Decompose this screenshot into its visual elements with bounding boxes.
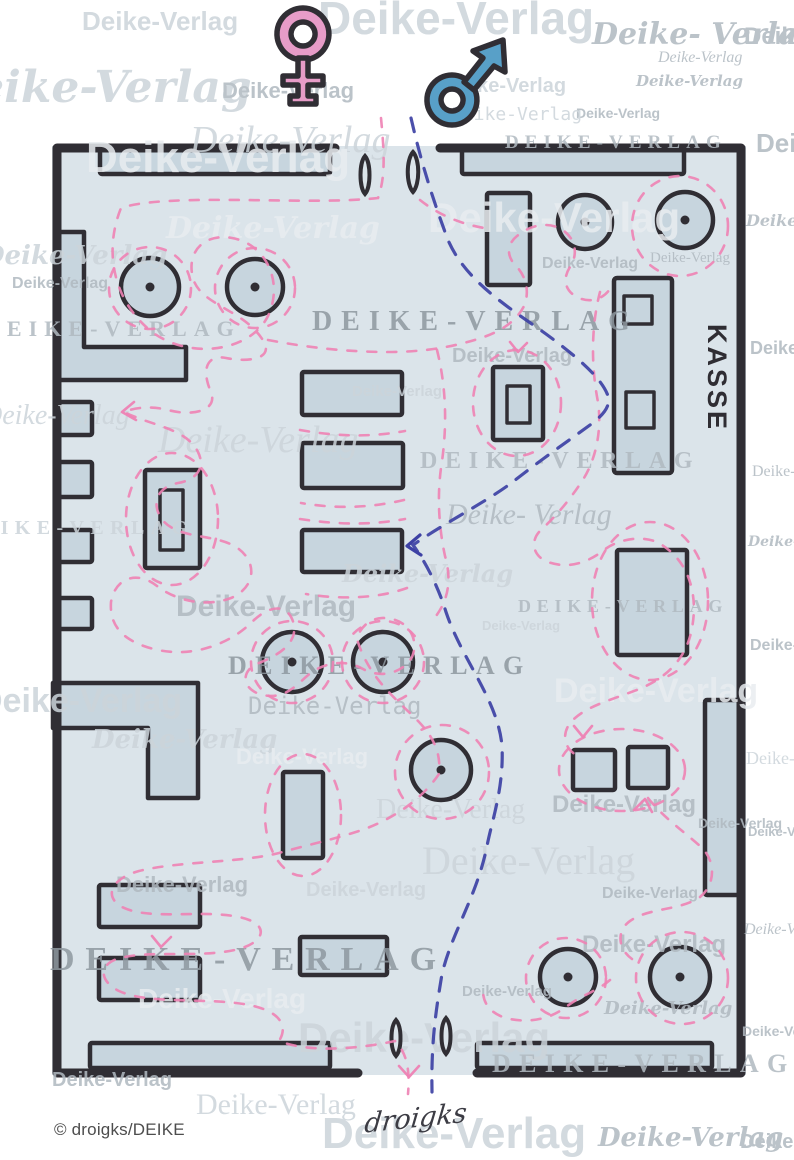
wall-shelf-right bbox=[705, 700, 742, 895]
rack-pole bbox=[251, 283, 260, 292]
exit-door-left bbox=[392, 1020, 401, 1056]
watermark-text: Deike-Verlag bbox=[752, 463, 794, 480]
watermark-text: Deike-Verlag bbox=[743, 921, 794, 938]
watermark-text: Deike-Verlag bbox=[650, 250, 730, 266]
watermark-text: Deike-Verlag bbox=[742, 1023, 794, 1039]
store-map-svg: Deike-VerlagDeike-VerlagDeike- VerlagDei… bbox=[0, 0, 794, 1160]
watermark-text: Deike-Verlag bbox=[746, 748, 794, 768]
watermark-text: DEIKE-VERLAG bbox=[518, 596, 728, 616]
watermark-text: Deike-Verlag bbox=[376, 794, 525, 825]
watermark-text: Deike- Verlag bbox=[445, 498, 612, 531]
watermark-text: Deike-Verlag bbox=[52, 1069, 172, 1091]
table-right-2 bbox=[628, 747, 668, 788]
watermark-text: Deike-Verlag bbox=[756, 128, 794, 158]
watermark-text: DEIKE-VERLAG bbox=[312, 306, 639, 337]
display-center-right bbox=[493, 367, 543, 440]
watermark-text: Deike-Verlag bbox=[341, 559, 513, 588]
watermark-text: Deike-Verlag bbox=[422, 838, 635, 883]
watermark-text: Deike-Verlag bbox=[745, 211, 794, 230]
entrance-door-right bbox=[408, 152, 419, 192]
table-right-1 bbox=[573, 750, 615, 790]
shelf-top-right bbox=[462, 150, 684, 174]
copyright-notice: © droigks/DEIKE bbox=[54, 1120, 185, 1140]
watermark-text: Deike-Verlag bbox=[554, 672, 758, 710]
watermark-text: Deike-Verlag bbox=[428, 194, 680, 241]
watermark-text: Deike-Verlag bbox=[744, 23, 794, 50]
watermark-text: DEIKE-VERLAG bbox=[505, 132, 727, 153]
watermark-text: Deike-Verlag bbox=[552, 791, 696, 818]
exit-door-right bbox=[442, 1018, 451, 1054]
watermark-text: Deike-Verlag bbox=[740, 1131, 794, 1153]
watermark-text: Deike-Verlag bbox=[165, 211, 380, 246]
watermark-text: DEIKE-VERLAG bbox=[0, 517, 194, 539]
watermark-text: Deike-Verlag bbox=[236, 744, 368, 769]
watermark-text: Deike-Verlag bbox=[86, 133, 350, 182]
watermark-text: Deike-Verlag bbox=[82, 6, 238, 36]
kasse-label: KASSE bbox=[702, 324, 732, 432]
rack-pole bbox=[146, 283, 155, 292]
watermark-text: Deike-Verlag bbox=[306, 879, 426, 901]
watermark-text: Deike-Verlag bbox=[750, 338, 794, 358]
watermark-text: Deike-Verlag bbox=[0, 400, 130, 431]
shelf-mid-low bbox=[283, 772, 323, 858]
cartoon-store-map: Deike-VerlagDeike-VerlagDeike- VerlagDei… bbox=[0, 0, 794, 1160]
wall-shelf-2 bbox=[58, 462, 92, 497]
watermark-text: Deike-Verlag bbox=[602, 885, 698, 902]
watermark-text: Deike-Verlag bbox=[318, 0, 594, 44]
watermark-text: Deike-Verlag bbox=[352, 383, 442, 400]
watermark-text: Deike-Verlag bbox=[462, 983, 552, 1000]
rack-pole bbox=[676, 973, 685, 982]
watermark-text: Deike-Verlag bbox=[635, 72, 743, 90]
watermark-text: Deike-Verlag bbox=[657, 49, 742, 66]
entrance-door-left bbox=[361, 156, 370, 194]
rack-pole bbox=[681, 216, 690, 225]
watermark-text: Deike-Verlag bbox=[0, 241, 167, 271]
wall-shelf-4 bbox=[58, 598, 92, 629]
watermark-text: Deike-Verlag bbox=[603, 998, 732, 1019]
watermark-text: DEIKE-VERLAG bbox=[0, 316, 241, 341]
watermark-text: Deike-Verlag bbox=[0, 62, 252, 113]
watermark-text: Deike-Verlag bbox=[542, 255, 638, 272]
watermark-text: Deike-Verlag bbox=[116, 872, 248, 897]
watermark-text: Deike-Verlag bbox=[748, 824, 794, 839]
watermark-text: Deike-Verlag bbox=[582, 931, 726, 958]
rack-pole bbox=[437, 766, 446, 775]
watermark-text: Deike-Verlag bbox=[747, 534, 794, 550]
watermark-text: DEIKE-VERLAG bbox=[420, 448, 700, 474]
watermark-text: Deike-Verlag bbox=[452, 345, 572, 367]
rack-pole bbox=[564, 973, 573, 982]
watermark-text: Deike-Verlag bbox=[12, 275, 108, 292]
watermark-text: Deike-Verlag bbox=[576, 105, 660, 121]
shelf-bottom-wall-left bbox=[90, 1043, 330, 1068]
watermark-text: Deike-Verlag bbox=[176, 590, 356, 623]
watermark-text: DEIKE-VERLAG bbox=[492, 1049, 794, 1078]
watermark-text: Deike-Verlag bbox=[482, 618, 560, 633]
watermark-text: Deike-Verlag bbox=[0, 682, 182, 720]
watermark-text: DEIKE-VERLAG bbox=[228, 651, 532, 680]
watermark-text: Deike-Verlag bbox=[750, 637, 794, 654]
